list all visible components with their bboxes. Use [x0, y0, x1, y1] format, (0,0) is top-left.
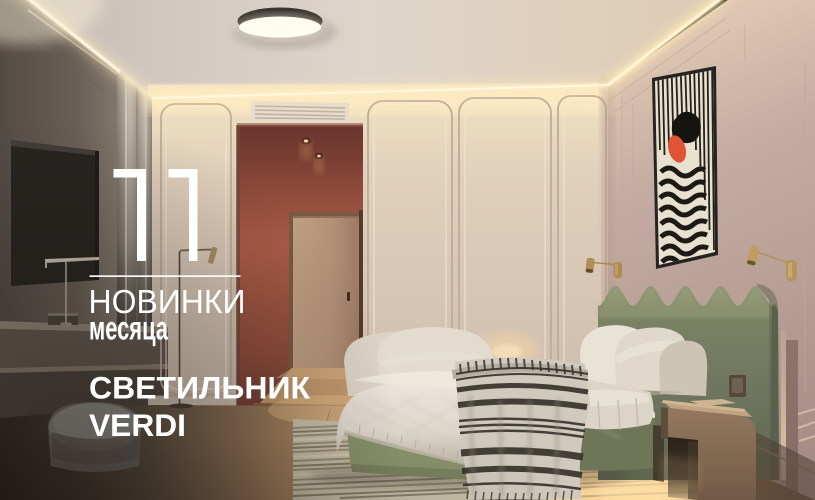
- svg-text:месяца: месяца: [89, 310, 168, 347]
- svg-text:СВЕТИЛЬНИК: СВЕТИЛЬНИК: [89, 370, 311, 406]
- svg-text:VERDI: VERDI: [89, 407, 186, 443]
